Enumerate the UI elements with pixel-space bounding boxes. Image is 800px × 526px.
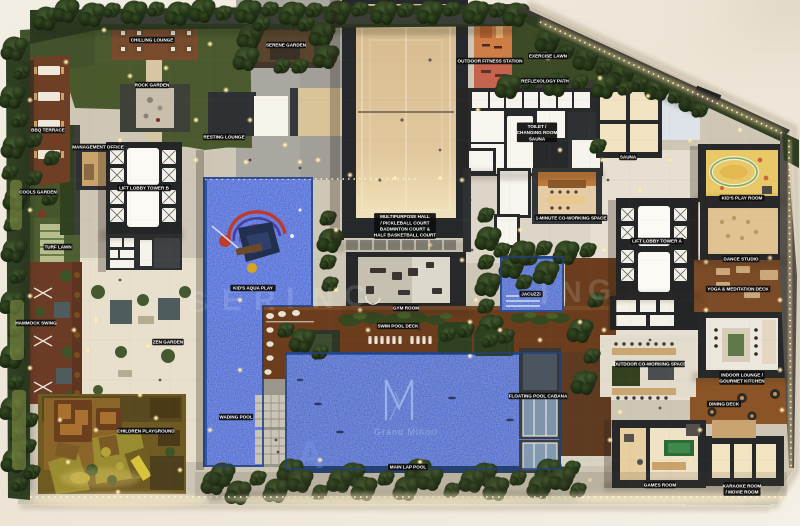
- svg-text:DANCE STUDIO: DANCE STUDIO: [724, 257, 759, 262]
- svg-text:YOGA & MEDITATION DECK: YOGA & MEDITATION DECK: [707, 287, 769, 292]
- svg-text:LIFT LOBBY TOWER A: LIFT LOBBY TOWER A: [632, 239, 682, 244]
- svg-text:HAMMOCK SWING: HAMMOCK SWING: [15, 321, 57, 326]
- svg-text:/ MOVIE ROOM: / MOVIE ROOM: [726, 490, 759, 495]
- svg-text:GYM ROOM: GYM ROOM: [393, 306, 419, 311]
- svg-text:GOURMET KITCHEN: GOURMET KITCHEN: [719, 379, 765, 384]
- svg-text:MAIN LAP POOL: MAIN LAP POOL: [390, 465, 427, 470]
- svg-text:INDOOR LOUNGE /: INDOOR LOUNGE /: [721, 372, 764, 377]
- svg-text:DINING DECK: DINING DECK: [709, 402, 740, 407]
- svg-text:OUTDOOR CO-WORKING SPACE: OUTDOOR CO-WORKING SPACE: [614, 362, 687, 367]
- svg-text:CHILLING LOUNGE: CHILLING LOUNGE: [131, 38, 174, 43]
- svg-text:HALF BASKETBALL COURT: HALF BASKETBALL COURT: [374, 233, 436, 238]
- svg-text:/ PICKLEBALL COURT: / PICKLEBALL COURT: [380, 220, 429, 225]
- svg-text:OUTDOOR FITNESS STATION: OUTDOOR FITNESS STATION: [458, 59, 524, 64]
- svg-text:BBQ TERRACE: BBQ TERRACE: [31, 128, 65, 133]
- svg-text:ZEN GARDEN: ZEN GARDEN: [153, 340, 184, 345]
- svg-text:G: G: [588, 274, 611, 307]
- svg-text:SWIM POOL DECK: SWIM POOL DECK: [377, 324, 419, 329]
- svg-text:KID'S AQUA PLAY: KID'S AQUA PLAY: [233, 286, 273, 291]
- svg-text:MANAGEMENT OFFICE: MANAGEMENT OFFICE: [72, 145, 124, 150]
- svg-text:WADING POOL: WADING POOL: [219, 415, 252, 420]
- svg-text:MULTIPURPOSE HALL: MULTIPURPOSE HALL: [380, 214, 430, 219]
- svg-text:N: N: [312, 282, 334, 315]
- svg-text:LIFT LOBBY TOWER B: LIFT LOBBY TOWER B: [119, 186, 170, 191]
- svg-text:ROCK GARDEN: ROCK GARDEN: [135, 83, 170, 88]
- svg-text:FLOATING POOL CABANA: FLOATING POOL CABANA: [509, 394, 568, 399]
- svg-text:1-MINUTE CO-WORKING SPACE: 1-MINUTE CO-WORKING SPACE: [536, 216, 607, 221]
- svg-text:Grand Minori: Grand Minori: [374, 427, 438, 437]
- svg-text:KARAOKE ROOM: KARAOKE ROOM: [723, 483, 762, 488]
- svg-text:S: S: [188, 286, 208, 319]
- svg-text:JACUZZI: JACUZZI: [521, 292, 540, 297]
- svg-text:COOLS GARDEN: COOLS GARDEN: [19, 190, 57, 195]
- svg-text:TURF LAWN: TURF LAWN: [44, 245, 72, 250]
- svg-text:GAMES ROOM: GAMES ROOM: [644, 483, 677, 488]
- svg-text:BADMINTON COURT &: BADMINTON COURT &: [380, 227, 431, 232]
- svg-text:SERENE GARDEN: SERENE GARDEN: [266, 43, 307, 48]
- svg-text:CHILDREN PLAYGROUND: CHILDREN PLAYGROUND: [117, 429, 175, 434]
- svg-text:RESTING LOUNGE: RESTING LOUNGE: [203, 135, 244, 140]
